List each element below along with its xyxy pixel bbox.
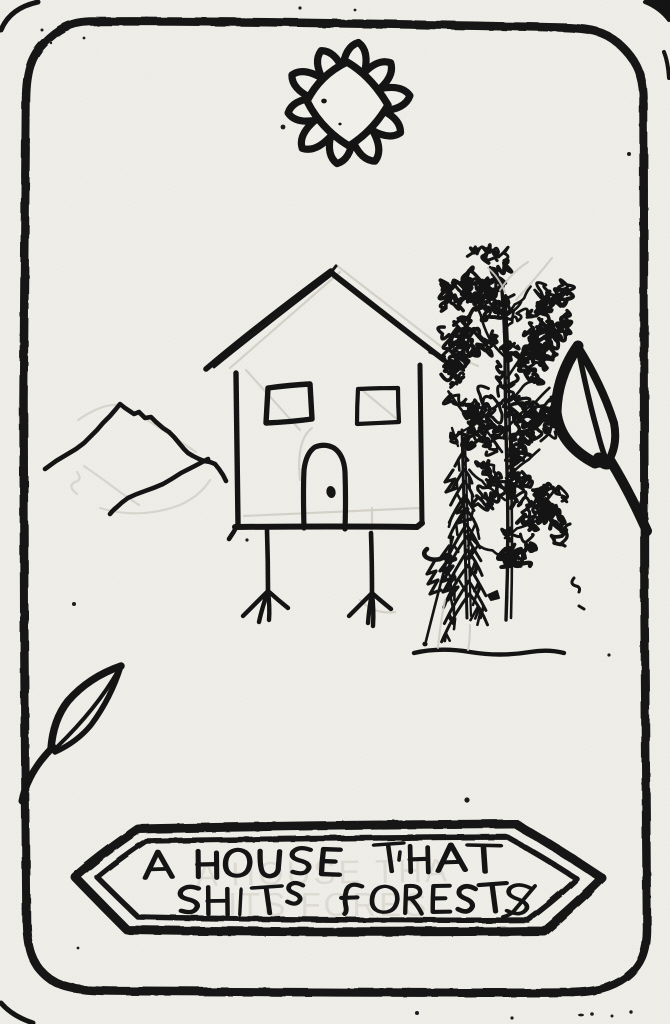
- svg-text:ITS FORES: ITS FORES: [228, 886, 429, 923]
